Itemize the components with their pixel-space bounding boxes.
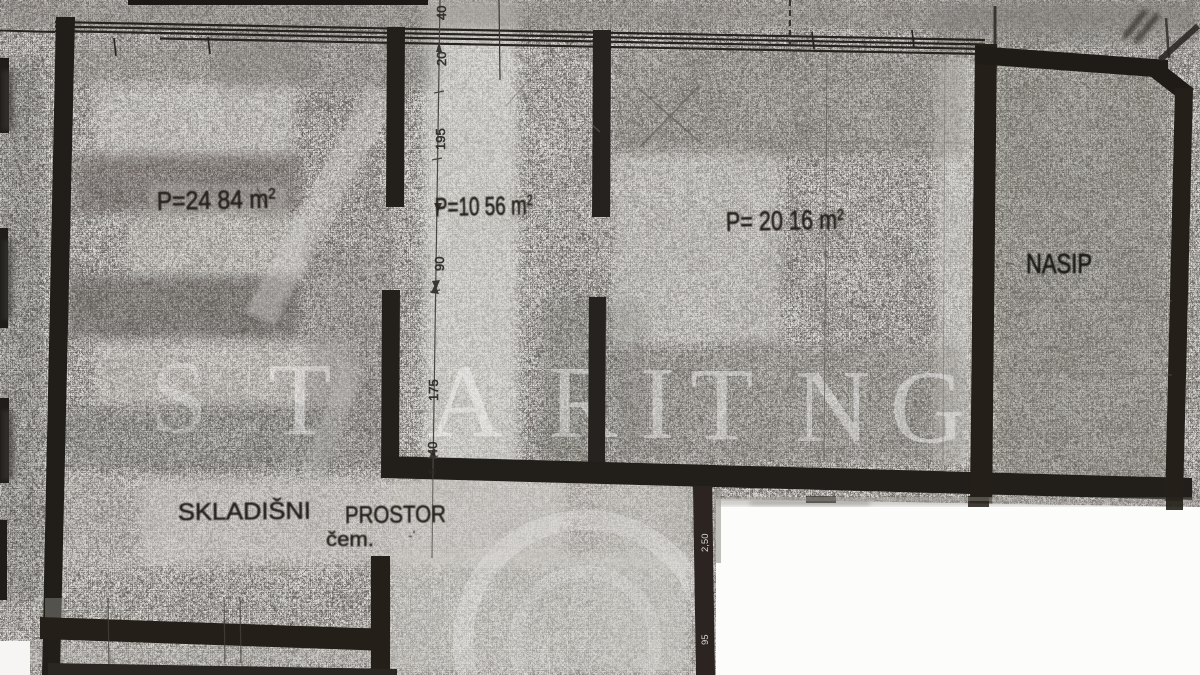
svg-text:-': -' — [408, 527, 415, 543]
svg-text:5: 5 — [428, 468, 439, 474]
svg-text:čem.: čem. — [326, 529, 374, 551]
svg-text:PROSTOR: PROSTOR — [345, 501, 446, 529]
svg-text:R: R — [548, 345, 618, 460]
svg-text:N: N — [795, 349, 870, 464]
svg-text:S: S — [150, 340, 208, 455]
svg-text:P=24 84 m2: P=24 84 m2 — [156, 184, 276, 216]
svg-text:NASIP: NASIP — [1026, 248, 1092, 279]
svg-text:90: 90 — [432, 257, 447, 271]
svg-text:T: T — [268, 342, 332, 457]
svg-text:P=10 56 m2: P=10 56 m2 — [434, 190, 533, 222]
svg-text:20: 20 — [434, 52, 449, 66]
svg-text:40: 40 — [425, 442, 440, 456]
svg-text:2,50: 2,50 — [700, 534, 711, 553]
svg-text:SKLADIŠNI: SKLADIŠNI — [178, 497, 311, 526]
svg-text:T: T — [690, 347, 754, 462]
svg-text:195: 195 — [433, 128, 448, 150]
svg-text:175: 175 — [426, 379, 441, 401]
svg-text:40: 40 — [434, 6, 449, 20]
svg-text:95: 95 — [700, 634, 711, 645]
svg-text:G: G — [890, 350, 965, 465]
svg-text:I: I — [640, 346, 675, 461]
svg-text:P= 20 16 m2: P= 20 16 m2 — [725, 205, 844, 237]
